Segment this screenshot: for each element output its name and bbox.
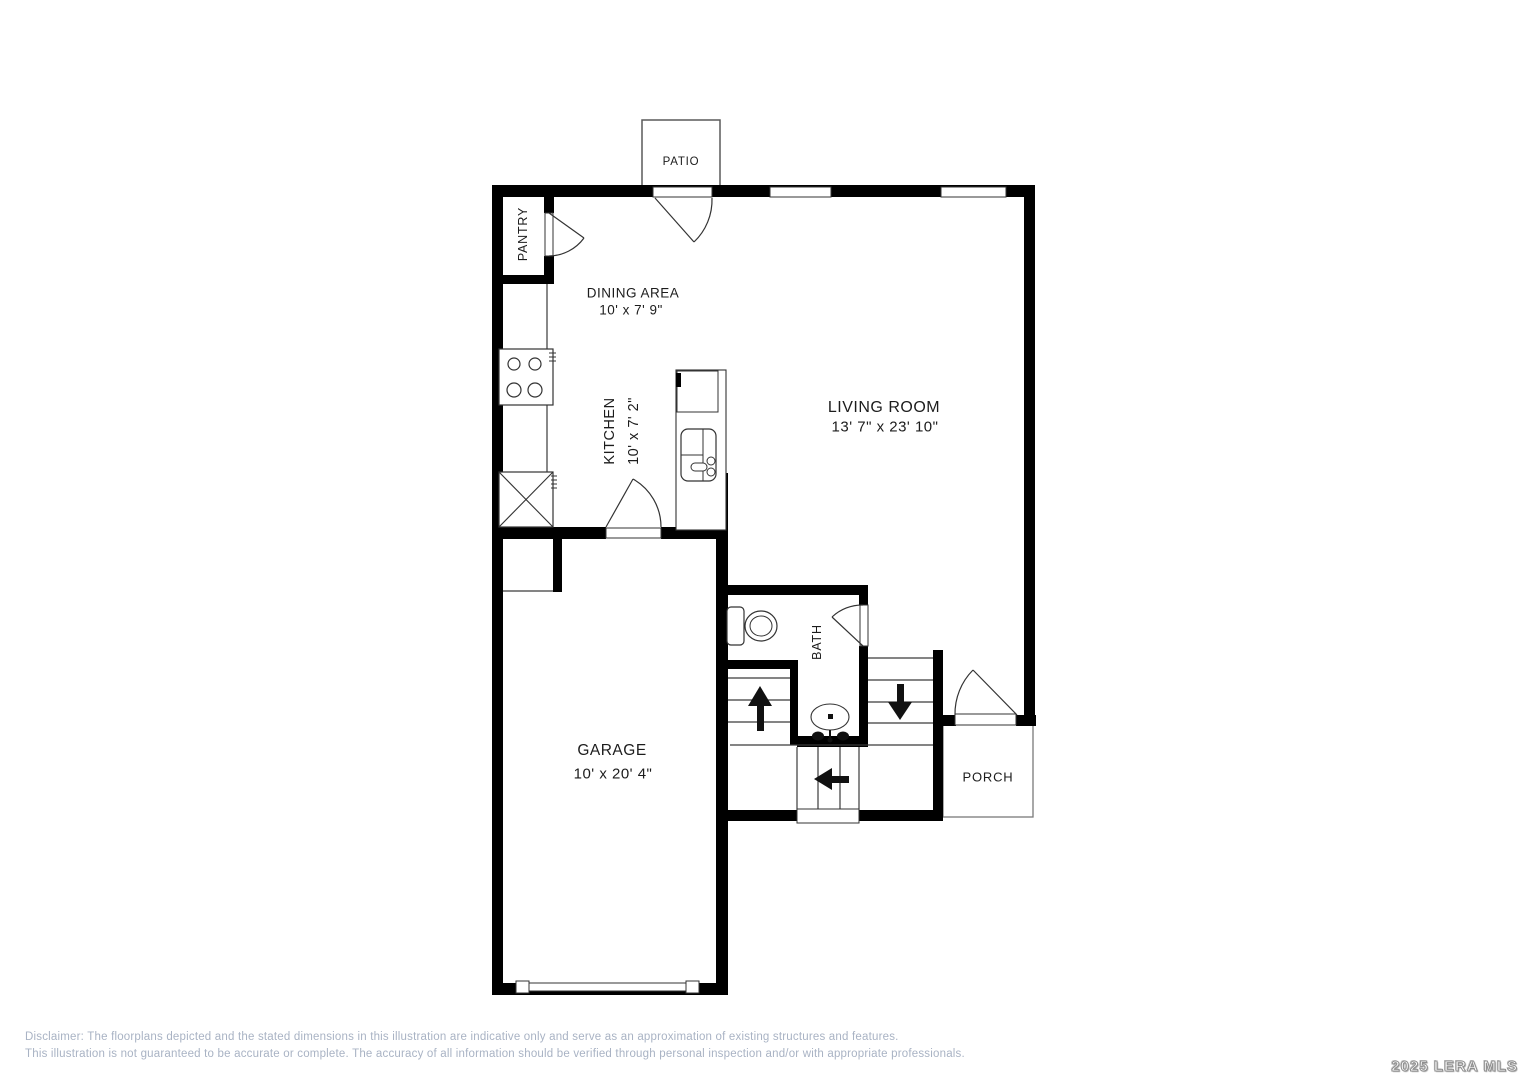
floorplan-page: PATIO PANTRY DINING AREA 10' x 7' 9" KIT… <box>0 0 1527 1080</box>
bath-inner-v-wall <box>790 660 798 745</box>
disclaimer-line-2: This illustration is not guaranteed to b… <box>25 1048 965 1060</box>
left-arrow-icon <box>814 768 849 790</box>
steps-threshold <box>797 809 859 823</box>
kitchen-label: KITCHEN <box>602 397 618 464</box>
window <box>941 187 1006 197</box>
bath-right-wall-lower <box>859 646 868 747</box>
garage-door <box>518 983 688 991</box>
pantry-door-jamb <box>545 213 553 256</box>
pantry-bottom-wall <box>492 275 554 284</box>
porch-label: PORCH <box>963 770 1014 785</box>
garage-door-end-right <box>686 981 699 993</box>
garage-notch-wall <box>553 539 562 592</box>
up-arrow-icon <box>748 686 772 731</box>
walls <box>492 185 1036 995</box>
kitchen-door-arc <box>606 479 661 527</box>
kitchen-sink-fixture <box>681 429 716 481</box>
garage-door-end-left <box>516 981 529 993</box>
garage-right-wall <box>716 473 728 995</box>
patio-door-arc <box>655 198 712 242</box>
landing-bottom-wall-right <box>859 810 943 821</box>
garage-label: GARAGE <box>577 742 646 760</box>
dining-area-dimension: 10' x 7' 9" <box>599 303 662 318</box>
garage-dimension: 10' x 20' 4" <box>574 766 653 783</box>
interior-lines <box>503 284 553 591</box>
bath-label: BATH <box>810 624 824 660</box>
living-room-dimension: 13' 7" x 23' 10" <box>832 419 939 436</box>
patio-outline <box>642 120 720 187</box>
bath-top-wall <box>727 585 868 595</box>
disclaimer-line-1: Disclaimer: The floorplans depicted and … <box>25 1031 899 1043</box>
kitchen-dimension: 10' x 7' 2" <box>626 397 642 465</box>
door-swings <box>549 198 1017 715</box>
living-bottom-wall-left <box>933 715 956 726</box>
right-wall <box>1024 185 1035 726</box>
toilet-fixture <box>727 607 777 645</box>
window <box>770 187 831 197</box>
island-counter <box>676 370 726 530</box>
living-bottom-wall-right <box>1016 715 1036 726</box>
pantry-label: PANTRY <box>516 207 530 261</box>
landing-bottom-wall-left <box>716 810 797 821</box>
dining-area-label: DINING AREA <box>587 286 680 301</box>
patio-label: PATIO <box>663 156 700 168</box>
vanity-sink-fixture <box>811 704 849 743</box>
pantry-door-arc <box>549 213 584 256</box>
entry-door-threshold <box>955 714 1016 725</box>
entry-door-arc <box>955 670 1017 715</box>
stairwell-right-wall <box>933 650 943 821</box>
patio-door-threshold <box>653 187 712 197</box>
living-room-label: LIVING ROOM <box>828 399 940 417</box>
bath-door-jamb <box>860 605 868 646</box>
down-arrow-icon <box>888 684 912 720</box>
mls-watermark: 2025 LERA MLS <box>1391 1058 1518 1075</box>
cabinet-x-fixture <box>499 472 557 527</box>
bath-door-arc <box>832 605 863 646</box>
pantry-right-wall-upper <box>544 185 554 213</box>
bath-right-wall-upper <box>859 585 868 605</box>
left-wall <box>492 185 503 995</box>
stove-fixture <box>499 349 556 405</box>
floorplan-drawing <box>0 0 1527 1080</box>
kitchen-door-threshold <box>606 528 661 538</box>
kitchen-bottom-wall-left <box>492 527 606 539</box>
bath-inner-h-wall <box>727 660 798 669</box>
